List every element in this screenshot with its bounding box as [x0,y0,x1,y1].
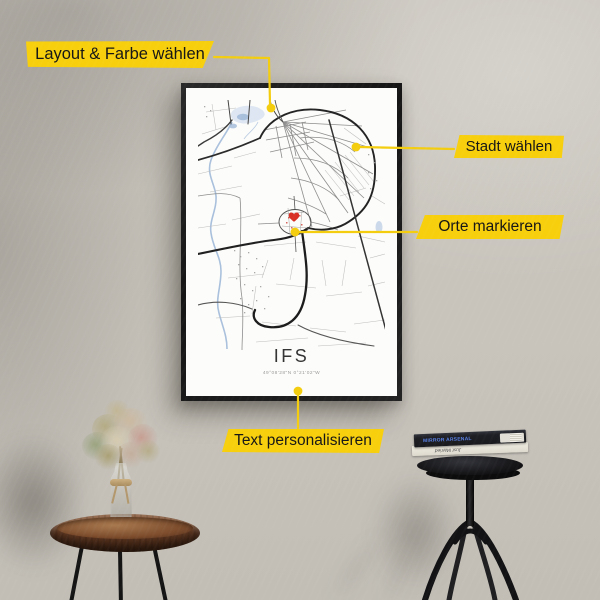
stool-leg-shadow [316,518,398,600]
book-bottom-spine-text: Just Married [435,447,462,453]
table-leg [65,546,84,600]
glass-vase [107,463,135,517]
callout-text-label: Text personalisieren [234,432,372,450]
book-top-spine-text: MIRROR ARSENAL [423,436,472,444]
map-poster: IFS 49°08'28"N 0°21'02"W [186,88,397,396]
map-graphic [198,100,385,350]
table-leg [152,546,172,600]
heart-marker-icon [289,213,300,222]
callout-stadt: Stadt wählen [454,135,564,158]
wall-scene: IFS 49°08'28"N 0°21'02"W Layout & Farbe … [0,0,600,600]
callout-orte-label: Orte markieren [438,218,541,236]
table-surface [57,517,193,539]
callout-orte: Orte markieren [416,215,564,239]
callout-layout-label: Layout & Farbe wählen [35,45,205,64]
callout-layout-farbe: Layout & Farbe wählen [26,41,214,68]
water-layer [209,106,382,349]
city-map [198,100,385,350]
callout-stadt-label: Stadt wählen [466,138,553,155]
poster-coordinates: 49°08'28"N 0°21'02"W [228,370,355,375]
poster-frame: IFS 49°08'28"N 0°21'02"W [181,83,402,401]
medium-roads-layer [198,110,373,350]
stool-column [466,474,474,526]
stool-seat [417,456,523,475]
book-pages-edge [500,433,524,443]
poster-title: IFS [186,346,397,367]
callout-text: Text personalisieren [222,429,384,453]
table-leg [118,550,123,600]
twine-bow [110,479,132,486]
